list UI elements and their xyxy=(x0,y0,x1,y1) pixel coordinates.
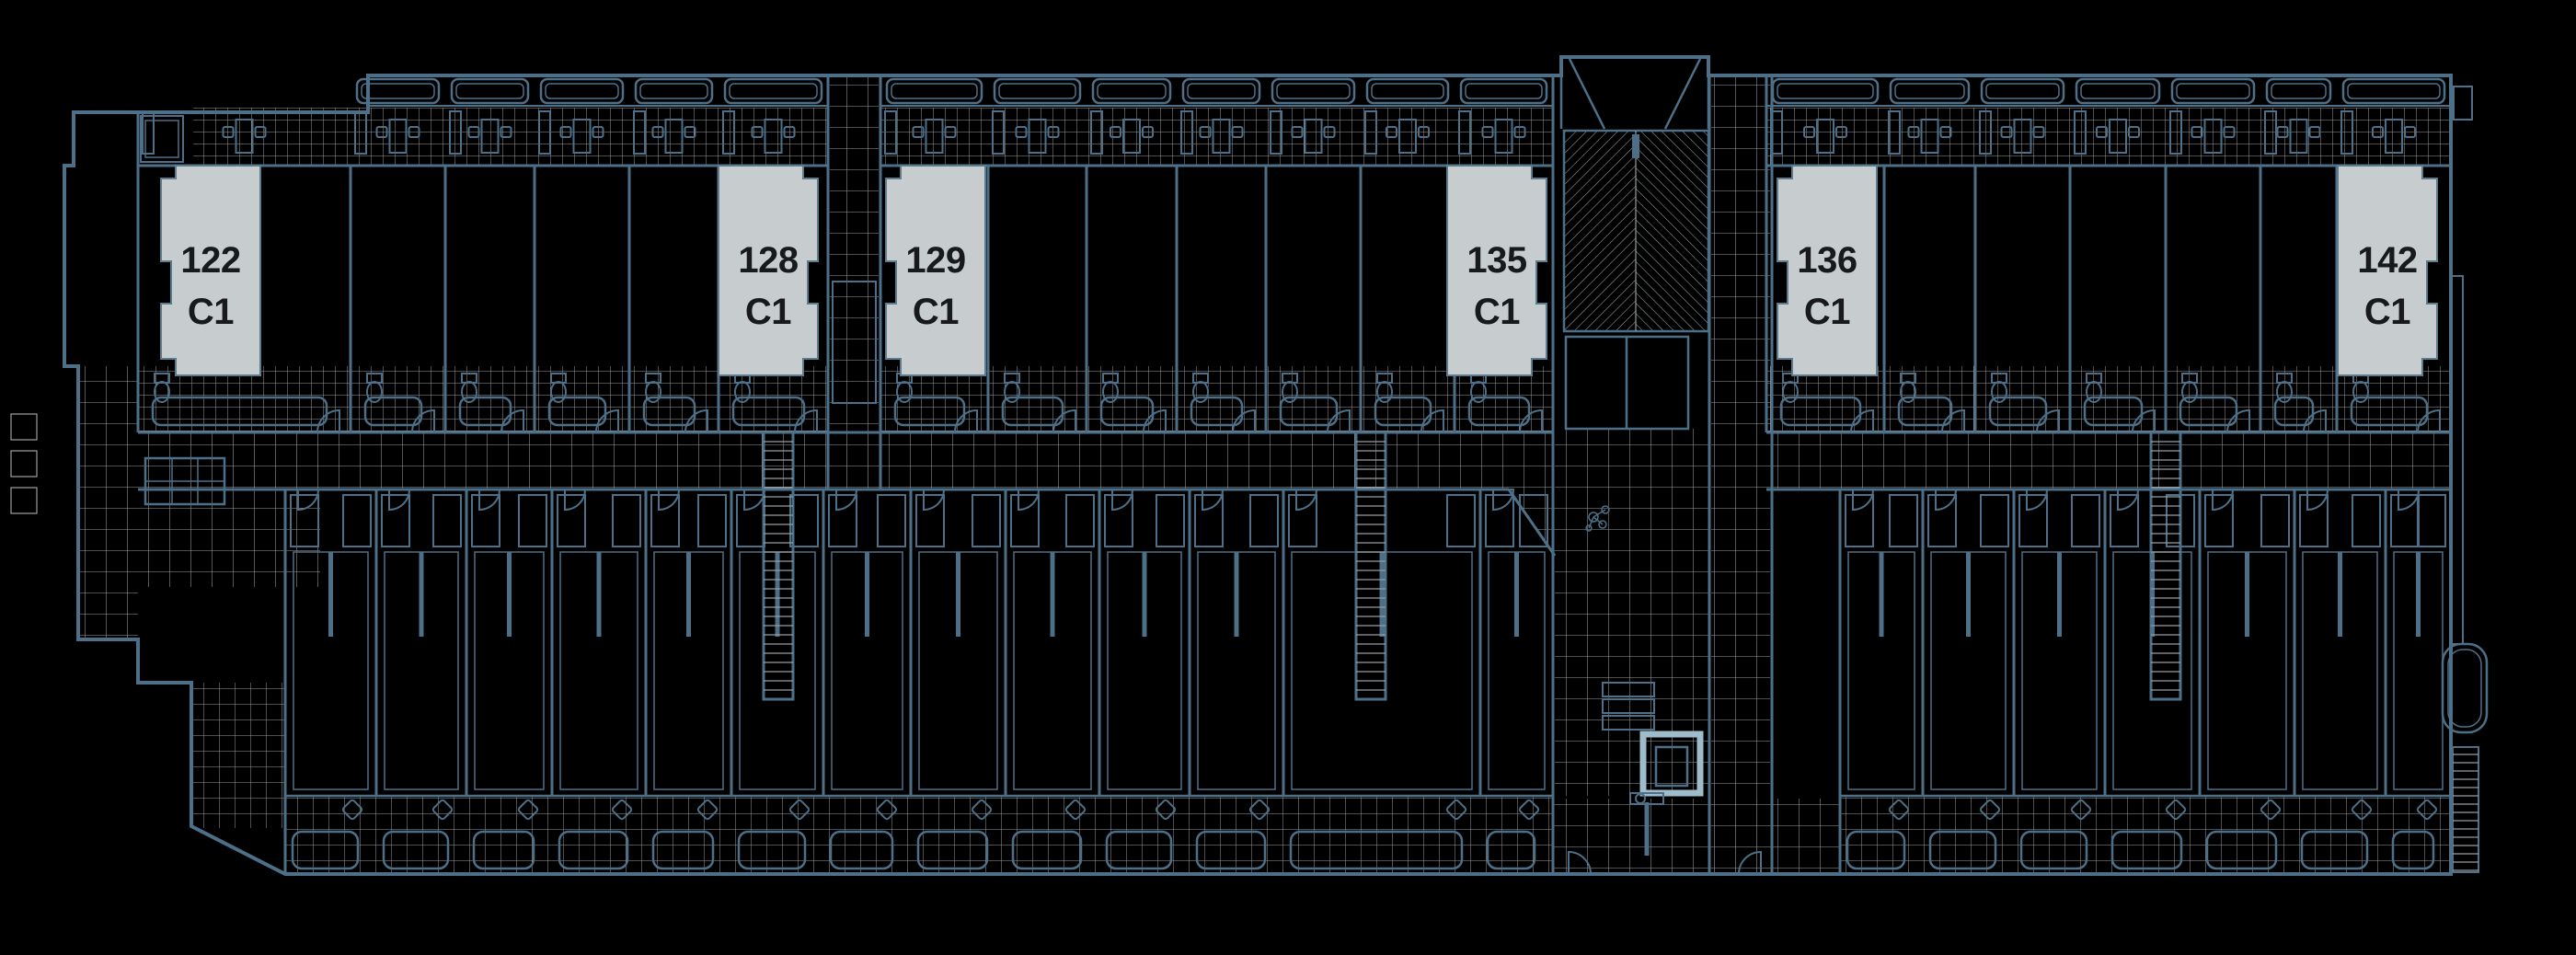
closet-icon xyxy=(1890,495,1917,547)
planter-icon xyxy=(1891,79,1969,103)
door-arc-icon xyxy=(2213,489,2233,510)
building-structure xyxy=(11,57,2487,874)
planter-icon xyxy=(730,84,817,98)
floorplan-page: 122 C1 128 C1 129 C1 135 C1 136 C1 142 C… xyxy=(0,0,2576,955)
planter-icon xyxy=(1277,84,1350,98)
planter-icon xyxy=(11,451,37,477)
unit-type: C1 xyxy=(1804,292,1850,332)
closet-icon xyxy=(2418,495,2445,547)
door-arc-icon xyxy=(2307,489,2328,510)
planter-icon xyxy=(2076,79,2159,103)
planter-icon xyxy=(11,414,37,440)
planter-icon xyxy=(1183,79,1259,103)
unit-136-marker[interactable]: 136 C1 xyxy=(1777,166,1877,375)
lobby-corridor-tile xyxy=(1711,77,1770,874)
planter-icon xyxy=(636,79,712,103)
closet-icon xyxy=(141,116,183,162)
planter-icon xyxy=(1773,79,1878,103)
closet-icon xyxy=(343,495,371,547)
planter-icon xyxy=(725,79,822,103)
planter-icon xyxy=(2172,79,2254,103)
unit-number: 128 xyxy=(738,240,798,281)
unit-129-marker[interactable]: 129 C1 xyxy=(886,166,985,375)
door-arc-icon xyxy=(389,489,409,510)
hatched-void xyxy=(1636,131,1708,331)
planter-icon xyxy=(1466,84,1542,98)
west-entry-tile xyxy=(78,366,138,639)
unit-122-marker[interactable]: 122 C1 xyxy=(161,166,260,375)
planter-icon xyxy=(999,84,1075,98)
door-marker xyxy=(1632,134,1639,158)
door-arc-icon xyxy=(1936,489,1956,510)
planter-icon xyxy=(1272,79,1354,103)
closet-icon xyxy=(145,121,178,157)
planter-icon xyxy=(1986,84,2059,98)
planter-icon xyxy=(11,488,37,513)
unit-type: C1 xyxy=(188,292,234,332)
lobby-tile xyxy=(1555,429,1709,796)
closet-icon xyxy=(2261,495,2289,547)
door-arc-icon xyxy=(836,489,857,510)
planter-icon xyxy=(2267,79,2330,103)
planter-icon xyxy=(456,84,523,98)
planter-icon xyxy=(640,84,707,98)
floorplan-canvas: 122 C1 128 C1 129 C1 135 C1 136 C1 142 C… xyxy=(0,0,2576,955)
unit-type: C1 xyxy=(1474,292,1520,332)
planter-icon xyxy=(887,79,982,103)
west-court-tile xyxy=(191,683,285,828)
lobby-south-tile xyxy=(1553,799,1840,872)
unit-number: 135 xyxy=(1466,240,1526,281)
planter-icon xyxy=(541,79,623,103)
door-arc-icon xyxy=(479,489,500,510)
planter-icon xyxy=(1188,84,1255,98)
closet-icon xyxy=(1447,495,1475,547)
closet-icon xyxy=(972,495,1000,547)
unit-type: C1 xyxy=(913,292,959,332)
unit-markers: 122 C1 128 C1 129 C1 135 C1 136 C1 142 C… xyxy=(161,166,2437,375)
closet-icon xyxy=(2072,495,2099,547)
balcony-icon xyxy=(2448,650,2481,727)
planter-icon xyxy=(1098,84,1166,98)
closet-icon xyxy=(1981,495,2008,547)
planter-icon xyxy=(1461,79,1547,103)
unit-135-marker[interactable]: 135 C1 xyxy=(1447,166,1547,375)
planter-icon xyxy=(1093,79,1170,103)
planter-icon xyxy=(2081,84,2155,98)
unit-142-marker[interactable]: 142 C1 xyxy=(2338,166,2437,375)
door-arc-icon xyxy=(659,489,679,510)
planter-icon xyxy=(362,84,434,98)
planter-icon xyxy=(891,84,977,98)
unit-type: C1 xyxy=(745,292,791,332)
unit-number: 136 xyxy=(1797,240,1857,281)
door-arc-icon xyxy=(2118,489,2138,510)
vestibule-splay-walls xyxy=(1570,59,1700,129)
closet-icon xyxy=(1156,495,1184,547)
stair-core-tile xyxy=(830,77,879,489)
planter-icon xyxy=(1777,84,1873,98)
closet-icon xyxy=(2352,495,2380,547)
closet-icon xyxy=(433,495,461,547)
hatched-void xyxy=(1564,131,1636,331)
utility-box xyxy=(2454,86,2472,120)
kitchen-tile-band xyxy=(880,108,1553,166)
unit-number: 129 xyxy=(905,240,965,281)
door-arc-icon xyxy=(1853,489,1873,510)
door-arc-icon xyxy=(1296,489,1317,510)
door-arc-icon xyxy=(2398,489,2419,510)
door-arc-icon xyxy=(1202,489,1223,510)
planter-icon xyxy=(1982,79,2064,103)
planter-icon xyxy=(2271,84,2326,98)
closet-icon xyxy=(878,495,905,547)
unit-number: 142 xyxy=(2357,240,2417,281)
door-arc-icon xyxy=(1018,489,1039,510)
planter-icon xyxy=(1895,84,1964,98)
unit-type: C1 xyxy=(2364,292,2410,332)
vestibule-walls xyxy=(1561,57,1708,129)
closet-icon xyxy=(698,495,726,547)
corridor-tile xyxy=(1766,432,2451,489)
kitchen-counter-icon xyxy=(143,111,154,154)
planter-icon xyxy=(2343,79,2444,103)
planter-icon xyxy=(2348,84,2440,98)
unit-128-marker[interactable]: 128 C1 xyxy=(719,166,818,375)
planter-icon xyxy=(1367,79,1448,103)
door-arc-icon xyxy=(1112,489,1133,510)
planter-icon xyxy=(1372,84,1443,98)
closet-icon xyxy=(1250,495,1278,547)
door-arc-icon xyxy=(744,489,765,510)
planter-icon xyxy=(546,84,618,98)
door-arc-icon xyxy=(565,489,585,510)
planter-icon xyxy=(995,79,1080,103)
planter-icon xyxy=(452,79,528,103)
planter-icon xyxy=(2177,84,2249,98)
closet-icon xyxy=(1066,495,1094,547)
closet-icon xyxy=(519,495,546,547)
door-arc-icon xyxy=(2027,489,2047,510)
closet-icon xyxy=(613,495,640,547)
unit-number: 122 xyxy=(180,240,240,281)
door-arc-icon xyxy=(924,489,944,510)
